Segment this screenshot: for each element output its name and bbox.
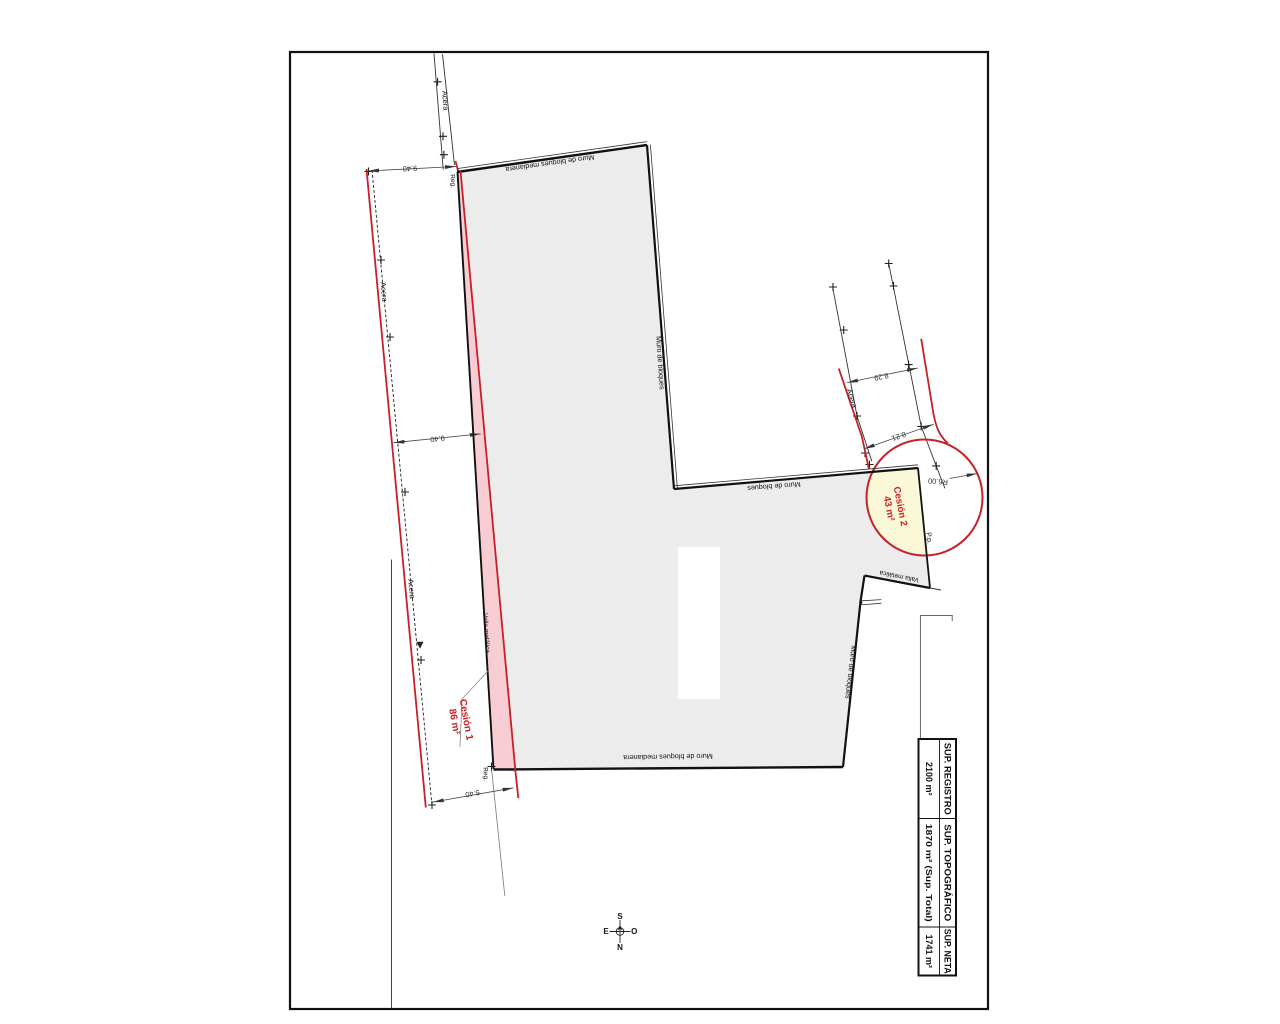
svg-text:O: O — [631, 927, 637, 936]
svg-text:P.p.: P.p. — [924, 532, 932, 544]
svg-text:Acera: Acera — [379, 282, 390, 303]
svg-text:SUP. REGISTRO: SUP. REGISTRO — [942, 743, 953, 815]
svg-text:2100 m²: 2100 m² — [924, 762, 934, 796]
svg-text:9.40: 9.40 — [430, 434, 445, 444]
svg-text:1870 m² (Sup. Total): 1870 m² (Sup. Total) — [924, 824, 933, 922]
svg-text:Muro de bloques medianera: Muro de bloques medianera — [623, 752, 713, 763]
svg-text:Acera: Acera — [406, 579, 417, 600]
svg-text:1741 m²: 1741 m² — [924, 934, 934, 968]
svg-text:N: N — [617, 943, 623, 952]
svg-text:Reg.: Reg. — [481, 767, 489, 781]
svg-text:E: E — [603, 927, 609, 936]
svg-text:9.40: 9.40 — [402, 164, 417, 174]
svg-text:R6.00: R6.00 — [928, 476, 949, 486]
svg-text:S: S — [617, 912, 623, 921]
svg-text:Reg.: Reg. — [449, 174, 457, 188]
svg-text:SUP. NETA: SUP. NETA — [942, 929, 953, 974]
svg-text:Acera: Acera — [440, 91, 450, 112]
svg-text:SUP. TOPOGRÁFICO: SUP. TOPOGRÁFICO — [942, 824, 953, 921]
